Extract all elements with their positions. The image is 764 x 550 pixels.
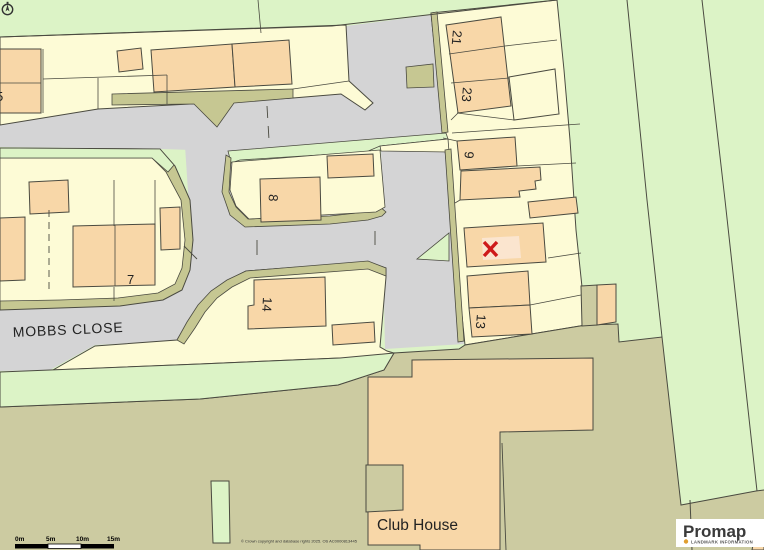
svg-text:7: 7 [127, 272, 134, 287]
svg-text:5: 5 [0, 89, 3, 104]
svg-text:9: 9 [461, 151, 477, 160]
svg-text:8: 8 [266, 194, 281, 202]
svg-text:Club House: Club House [377, 517, 458, 534]
svg-text:LANDMARK INFORMATION: LANDMARK INFORMATION [691, 540, 753, 545]
svg-text:0m: 0m [15, 536, 25, 543]
svg-text:Promap: Promap [683, 522, 746, 541]
svg-text:10m: 10m [76, 536, 89, 543]
svg-text:© Crown copyright and database: © Crown copyright and database rights 20… [241, 539, 358, 544]
svg-text:21: 21 [449, 30, 465, 46]
svg-text:5m: 5m [46, 536, 56, 543]
svg-text:13: 13 [473, 314, 489, 330]
svg-text:15m: 15m [107, 536, 120, 543]
svg-text:23: 23 [459, 87, 475, 103]
svg-text:14: 14 [259, 297, 275, 312]
